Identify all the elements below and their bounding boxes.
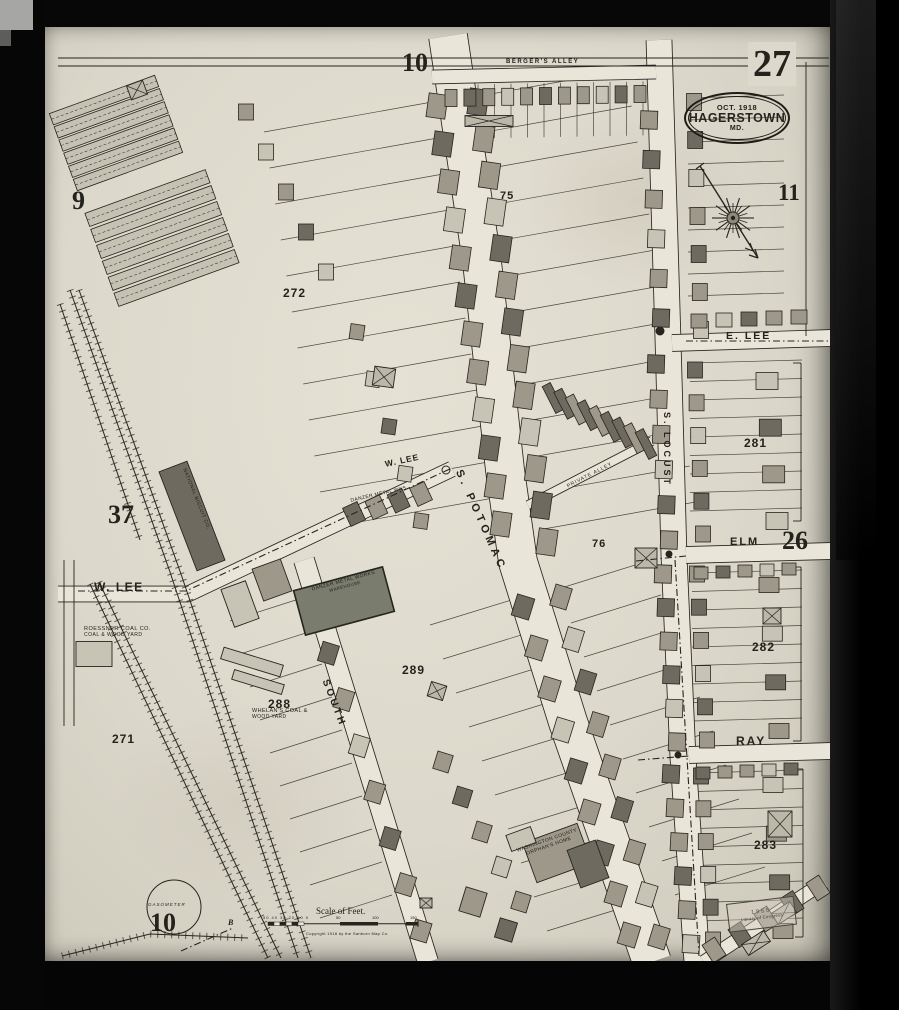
block-number-282: 282 xyxy=(752,640,775,654)
adjacent-sheet-9: 9 xyxy=(72,186,85,216)
orphans-home-label: WASHINGTON COUNTY ORPHAN'S HOME xyxy=(516,827,580,859)
scale-left-ticks: 50 40 30 20 10 0 xyxy=(263,915,309,920)
block-number-281: 281 xyxy=(744,436,767,450)
adjacent-sheet-37: 37 xyxy=(108,500,134,530)
point-b-label: B xyxy=(228,918,233,927)
adjacent-sheet-26: 26 xyxy=(782,526,808,556)
map-labels-layer: 27 OCT. 1918 HAGERSTOWN MD. 9 10 11 37 2… xyxy=(0,0,899,1010)
film-border-left xyxy=(0,0,45,1010)
street-s-locust: S. LOCUST xyxy=(662,412,672,487)
sanborn-map-scan: 27 OCT. 1918 HAGERSTOWN MD. 9 10 11 37 2… xyxy=(0,0,899,1010)
film-corner-chip xyxy=(0,0,33,30)
roessner-coal-label: ROESSNER COAL CO. COAL & WOOD YARD xyxy=(84,626,151,638)
street-bergers-alley: BERGER'S ALLEY xyxy=(506,59,579,65)
street-e-lee: E. LEE xyxy=(726,330,771,342)
street-private-alley: PRIVATE ALLEY xyxy=(566,461,614,489)
danzer-metal-works-label: DANZER METAL WKS. xyxy=(350,485,409,504)
street-s-potomac: S. POTOMAC xyxy=(453,468,508,573)
roessner-line2: COAL & WOOD YARD xyxy=(84,632,151,638)
adjacent-sheet-11: 11 xyxy=(778,180,800,206)
street-elm: ELM xyxy=(730,536,759,548)
sheet-number: 27 xyxy=(748,42,796,86)
adjacent-sheet-10-top: 10 xyxy=(402,48,428,78)
film-corner-chip-small xyxy=(0,30,11,46)
street-south: SOUTH xyxy=(320,678,348,729)
street-ray: RAY xyxy=(736,734,766,748)
whelan-coal-label: WHELAN'S COAL & WOOD YARD xyxy=(252,708,308,720)
stamp-state: MD. xyxy=(730,125,744,132)
block-number-271: 271 xyxy=(112,732,135,746)
stamp-date: OCT. 1918 xyxy=(717,104,757,112)
scale-title: Scale of Feet. xyxy=(316,906,365,916)
national-biscuit-label: NATIONAL BISCUIT CO. xyxy=(181,468,210,531)
block-number-272: 272 xyxy=(283,286,306,300)
block-number-75: 75 xyxy=(500,190,514,202)
scale-tick-50: 50 xyxy=(336,915,340,920)
film-streak xyxy=(836,0,876,560)
scale-tick-100: 100 xyxy=(372,915,379,920)
scale-tick-150: 150 xyxy=(410,915,417,920)
film-border-top xyxy=(0,0,899,27)
library-of-congress-stamp: 1955 Library of Congress xyxy=(726,896,797,933)
block-number-283: 283 xyxy=(754,838,777,852)
stamp-city: HAGERSTOWN xyxy=(689,112,785,125)
danzer-warehouse-label: DANZER METAL WORKS WAREHOUSE xyxy=(306,568,382,598)
block-number-76: 76 xyxy=(592,538,606,550)
block-number-289: 289 xyxy=(402,663,425,677)
street-w-lee-west: W. LEE xyxy=(94,580,144,594)
film-border-bottom xyxy=(0,961,899,1010)
gasometer-label: GASOMETER xyxy=(148,902,186,907)
street-w-lee-diagonal: W. LEE xyxy=(384,452,420,469)
city-date-stamp: OCT. 1918 HAGERSTOWN MD. xyxy=(684,92,790,144)
adjacent-sheet-10-bottom: 10 xyxy=(150,908,176,938)
copyright-line: Copyright 1918 by the Sanborn Map Co. xyxy=(306,931,389,936)
whelan-line2: WOOD YARD xyxy=(252,714,308,720)
